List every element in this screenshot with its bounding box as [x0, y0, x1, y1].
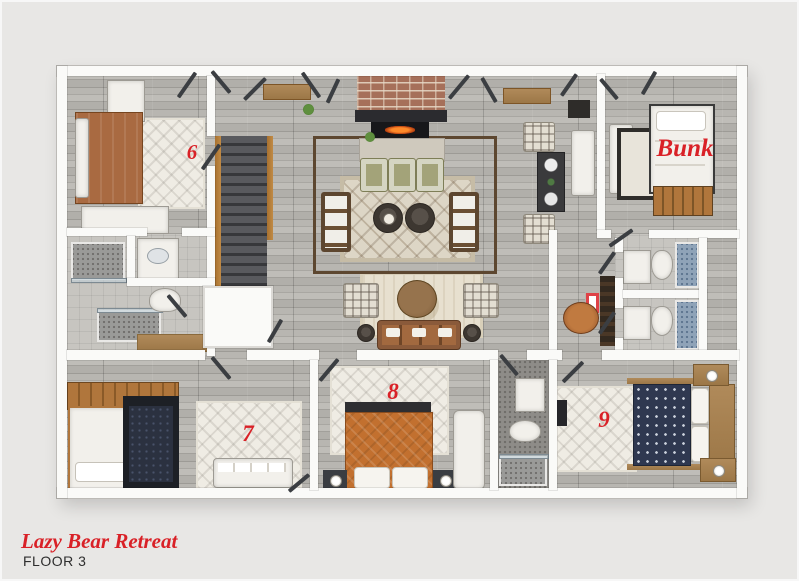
- bedroom9-headboard: [709, 384, 735, 468]
- bedroom9-tv: [557, 400, 567, 426]
- bath-right-bottom-vanity: [623, 306, 651, 340]
- sofa-cushions: [453, 196, 475, 248]
- floorplan-render: 6 Bunk 7 8 9: [57, 66, 747, 498]
- bath-right-top-vanity: [623, 250, 651, 284]
- side-drum-table: [357, 324, 375, 342]
- console-table: [263, 84, 311, 100]
- lamp-icon: [440, 475, 452, 487]
- wall-bath-bedroom9: [549, 360, 557, 490]
- dining-table: [537, 152, 565, 212]
- bedroom9-nightstand: [693, 364, 729, 386]
- tray: [383, 213, 395, 225]
- wall-middle: [357, 350, 498, 360]
- living-sofa-right: [449, 192, 479, 252]
- bath-small-sink: [515, 378, 545, 412]
- wall-middle: [602, 350, 739, 360]
- wall-bunkroom-bottom: [597, 230, 611, 238]
- dining-bench: [571, 130, 595, 196]
- wall-bath-left-divider: [127, 278, 215, 286]
- bath-left-shower: [71, 242, 125, 280]
- bath-right-bottom-shower: [675, 300, 699, 350]
- bedroom9-nightstand: [700, 458, 736, 482]
- pillow: [691, 426, 709, 462]
- window-frame: [326, 78, 341, 103]
- bath-right-top-shower: [675, 242, 699, 288]
- bedroom7-bed-dark-frame: [123, 396, 179, 490]
- bedroom9-bed: [633, 384, 691, 466]
- bedroom6-pillows: [75, 118, 89, 198]
- throw-pillow: [412, 328, 426, 337]
- ottoman: [405, 203, 435, 233]
- throw-pillow: [438, 328, 452, 337]
- sofa-cushions: [325, 196, 347, 248]
- floor-label: FLOOR 3: [23, 553, 86, 569]
- door-bath-right-top: [598, 251, 616, 275]
- living-sofa-left: [321, 192, 351, 252]
- lamp-icon: [713, 465, 725, 477]
- door-bedroom9: [562, 361, 585, 384]
- wall-bedroom8-bath: [490, 360, 498, 490]
- outer-wall-top: [57, 66, 747, 76]
- fireplace-mantel: [355, 110, 447, 122]
- wall-bedroom6-right: [207, 76, 215, 136]
- ottoman: [373, 203, 403, 233]
- bath-left-sink: [147, 248, 169, 264]
- bedroom8-chaise: [453, 410, 485, 490]
- wall-bedroom7-8: [310, 360, 318, 490]
- pillow: [354, 467, 390, 489]
- room-label-bunk: Bunk: [649, 136, 721, 161]
- bedroom7-sofa: [213, 458, 293, 488]
- door-bedroom7: [210, 356, 231, 380]
- leather-sofa: [377, 320, 461, 350]
- staircase-rail: [267, 136, 273, 240]
- wall-bath-left-divider: [127, 236, 135, 282]
- office-chair: [563, 302, 599, 334]
- room-label-8: 8: [378, 380, 408, 403]
- outer-wall-left: [57, 66, 67, 498]
- throw-pillow: [386, 328, 400, 337]
- wall-middle: [247, 350, 319, 360]
- wall-bedroom6-bottom: [67, 228, 147, 236]
- fireplace-chimney: [357, 74, 445, 112]
- wall-baths-right-left: [615, 278, 623, 308]
- pillow: [392, 467, 428, 489]
- window-frame: [560, 73, 578, 97]
- outer-wall-bottom: [57, 488, 747, 498]
- accent-chair: [360, 158, 388, 192]
- bath-small-shower: [499, 456, 547, 486]
- floorplan-page: 6 Bunk 7 8 9 Lazy Bear Retreat FLOOR 3: [0, 0, 799, 581]
- console-table: [503, 88, 551, 104]
- bunk-ladder: [653, 186, 713, 216]
- hall-closet: [203, 286, 273, 348]
- round-coffee-table: [397, 280, 437, 318]
- bedroom8-bed: [345, 412, 433, 490]
- fireplace-firebox: [371, 122, 429, 138]
- staircase: [221, 136, 267, 294]
- pillow: [75, 462, 127, 482]
- wall-middle: [527, 350, 562, 360]
- lamp-icon: [330, 475, 342, 487]
- pillow: [691, 388, 709, 424]
- wall-bunkroom-left: [597, 74, 605, 230]
- dining-chair: [523, 122, 555, 152]
- bath-right-bottom-toilet: [651, 306, 673, 336]
- wall-hall-right: [549, 230, 557, 356]
- sitting-plaid-chair: [343, 283, 379, 318]
- wall-baths-right-divider: [623, 290, 707, 298]
- room-label-7: 7: [233, 422, 263, 445]
- bedroom7-bed-dark: [129, 406, 173, 482]
- window-frame: [448, 74, 470, 100]
- plant-icon: [303, 104, 314, 115]
- sitting-plaid-chair: [463, 283, 499, 318]
- bunk-pillow: [656, 111, 706, 131]
- plan-title: Lazy Bear Retreat: [21, 529, 177, 554]
- blanket-fold: [655, 164, 705, 166]
- wall-bunkroom-bottom: [649, 230, 739, 238]
- bath-right-top-toilet: [651, 250, 673, 280]
- room-label-6: 6: [177, 142, 207, 163]
- bath-small-toilet: [509, 420, 541, 442]
- lamp-icon: [706, 370, 718, 382]
- bath-small-shower-glass: [499, 454, 549, 459]
- sofa-cushions: [218, 463, 286, 472]
- accent-chair: [416, 158, 444, 192]
- wall-bedroom6-bottom: [182, 228, 215, 236]
- room-label-9: 9: [589, 408, 619, 431]
- fire-glow: [385, 126, 415, 134]
- accent-chair: [388, 158, 416, 192]
- window-frame: [480, 77, 497, 103]
- wall-middle: [67, 350, 205, 360]
- bedroom8-nightstand: [323, 470, 347, 490]
- outer-wall-right: [737, 66, 747, 498]
- bath-left-shower-glass: [71, 278, 127, 283]
- wall-baths-right-right: [699, 238, 707, 352]
- side-drum-table: [463, 324, 481, 342]
- plant-icon: [365, 132, 375, 142]
- bunkroom-desk: [568, 100, 590, 118]
- staircase-rail: [215, 136, 221, 294]
